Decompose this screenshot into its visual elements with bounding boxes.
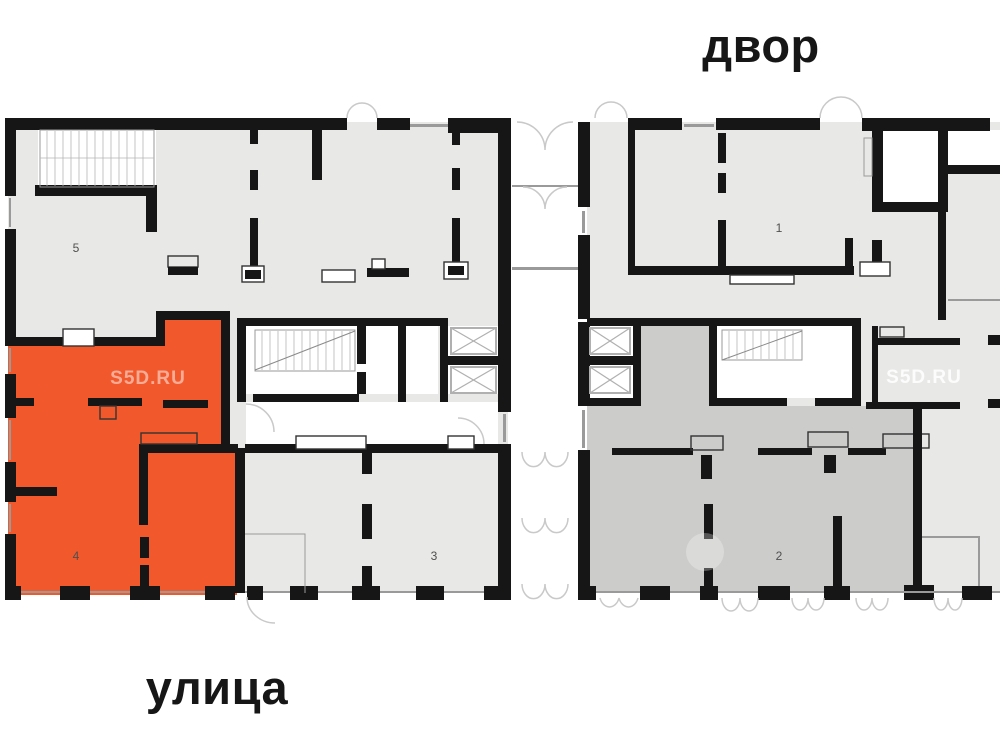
floor-plan-page: двор улица	[0, 0, 1000, 750]
unit-2-label: 2	[776, 549, 783, 563]
unit-2-corridor	[641, 322, 717, 406]
watermark-circle	[686, 533, 724, 571]
stairwell-top-left-area	[38, 130, 156, 187]
gap-corridor	[512, 122, 578, 599]
top-right-cut	[946, 130, 1000, 165]
unit-4-label: 4	[73, 549, 80, 563]
watermark-left: S5D.RU	[110, 368, 186, 389]
unit-1-label: 1	[776, 221, 783, 235]
unit-3-label: 3	[431, 549, 438, 563]
watermark-right: S5D.RU	[886, 367, 962, 388]
top-right-room	[883, 130, 940, 204]
unit-2-floor	[587, 406, 917, 593]
unit-5-label: 5	[73, 241, 80, 255]
floor-plan-svg: 5 4 3 1 2 S5D.RU S5D.RU	[0, 0, 1000, 750]
